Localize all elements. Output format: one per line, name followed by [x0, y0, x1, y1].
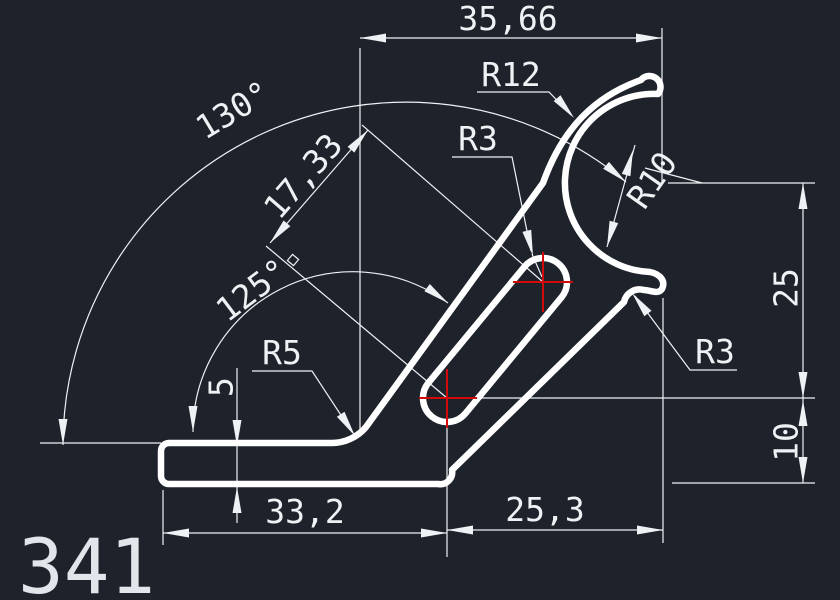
- drawing-background: [0, 0, 840, 600]
- radius-text-notch: R3: [695, 332, 735, 371]
- dimension-text-bottom-right: 25,3: [505, 490, 584, 529]
- radius-text-fillet: R5: [262, 333, 302, 372]
- dimension-text-right-upper: 25: [767, 268, 806, 308]
- dimension-text-thickness: 5: [202, 377, 241, 397]
- part-number-label: 341: [18, 522, 155, 600]
- radius-text-top: R12: [481, 55, 541, 94]
- dimension-text-base-length: 33,2: [265, 492, 344, 531]
- cad-canvas[interactable]: 35,66 130° 125° 17,33 25: [0, 0, 840, 600]
- dimension-text-right-lower: 10: [767, 422, 806, 462]
- radius-text-slot: R3: [458, 119, 498, 158]
- dimension-text-top-width: 35,66: [458, 0, 557, 38]
